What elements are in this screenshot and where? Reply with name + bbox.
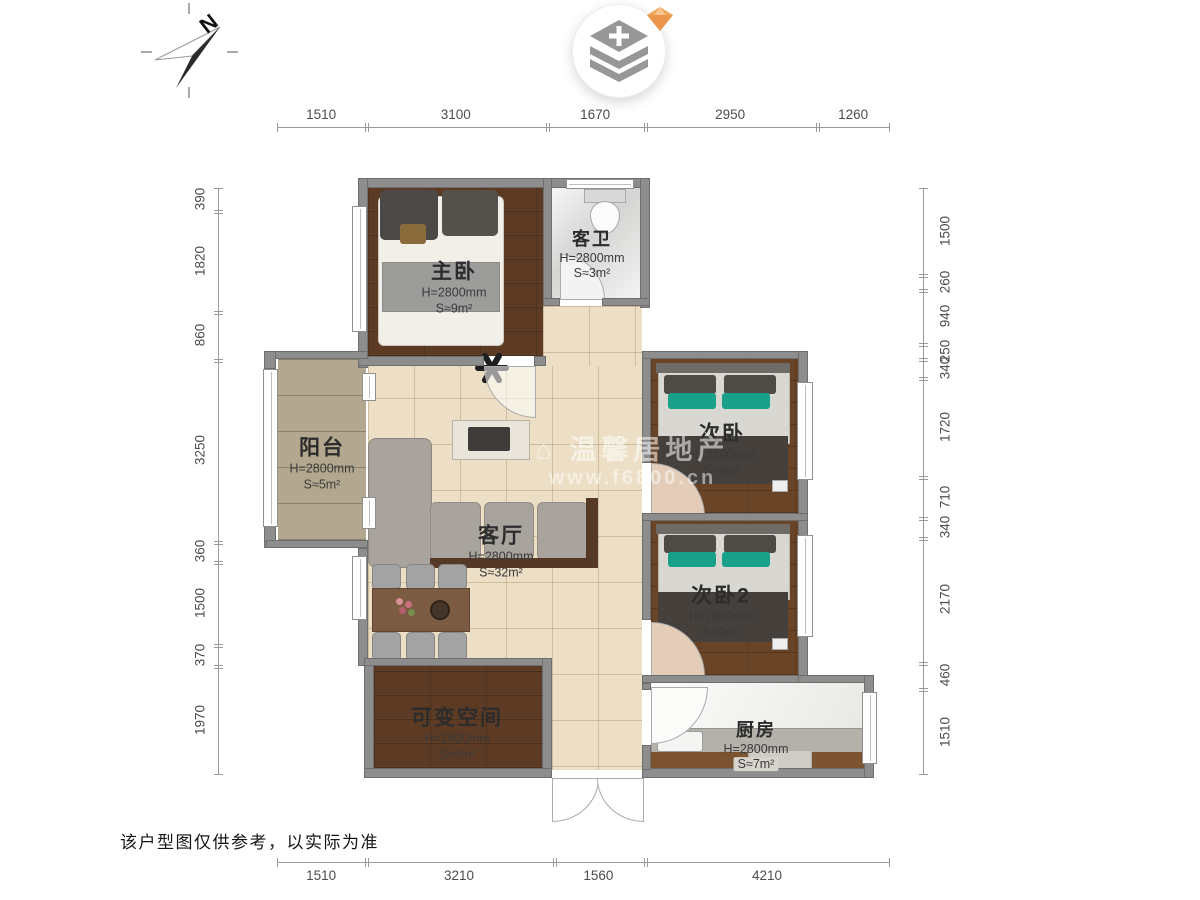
dimension-label: 1510 bbox=[277, 868, 365, 883]
room-height: H=2800mm bbox=[689, 610, 754, 626]
wall-segment bbox=[266, 351, 368, 359]
dimension-label: 710 bbox=[938, 485, 953, 508]
dimension-segment: 1970 bbox=[192, 665, 226, 775]
wall-segment bbox=[264, 351, 276, 369]
room-name: 可变空间 bbox=[411, 705, 503, 731]
room-height: H=2800mm bbox=[469, 550, 534, 566]
dining-chair bbox=[406, 564, 435, 590]
room-label-master: 主卧 H=2800mm S≈9m² bbox=[422, 259, 487, 317]
room-name: 厨房 bbox=[724, 719, 789, 742]
room-label-bath: 客卫 H=2800mm S≈3m² bbox=[560, 228, 625, 282]
wall-segment bbox=[640, 178, 650, 308]
dimension-segment: 1260 bbox=[816, 104, 890, 134]
dimension-segment: 940 bbox=[916, 289, 952, 343]
wall-segment bbox=[642, 683, 651, 690]
dimension-label: 3100 bbox=[365, 107, 546, 122]
wall-segment bbox=[642, 745, 651, 770]
room-area: S≈9m² bbox=[689, 625, 754, 641]
dimension-label: 1500 bbox=[193, 588, 208, 618]
dimension-label: 1720 bbox=[938, 412, 953, 442]
room-name: 阳台 bbox=[290, 435, 355, 461]
wall-segment bbox=[358, 356, 484, 366]
dimension-segment: 4210 bbox=[644, 856, 890, 886]
room-height: H=2800mm bbox=[560, 251, 625, 267]
dimension-segment: 710 bbox=[916, 476, 952, 517]
bedroom3-headboard bbox=[656, 524, 790, 534]
bed-foot bbox=[772, 480, 788, 492]
master-window bbox=[352, 206, 367, 332]
dining-chair bbox=[372, 632, 401, 661]
dimension-segment: 3210 bbox=[365, 856, 553, 886]
tv-console bbox=[468, 427, 510, 451]
room-area: S≈8m² bbox=[690, 463, 755, 479]
room-area: S≈32m² bbox=[469, 565, 534, 581]
dimension-label: 1970 bbox=[193, 705, 208, 735]
dimension-segment: 1510 bbox=[916, 688, 952, 775]
dining-window bbox=[352, 556, 367, 620]
bedroom2-headboard bbox=[656, 363, 790, 373]
sofa-cushion bbox=[537, 502, 588, 560]
dimension-segment: 1720 bbox=[916, 377, 952, 476]
hall-floor bbox=[543, 306, 642, 366]
wall-segment bbox=[542, 658, 552, 776]
dimension-label: 1500 bbox=[938, 216, 953, 246]
dimension-strip-top: 15103100167029501260 bbox=[277, 104, 890, 134]
room-height: H=2800mm bbox=[690, 448, 755, 464]
dimension-segment: 370 bbox=[192, 644, 226, 665]
dimension-label: 360 bbox=[193, 539, 208, 562]
dimension-segment: 860 bbox=[192, 311, 226, 359]
bedroom3-teal-pillow bbox=[722, 552, 770, 567]
dimension-label: 460 bbox=[938, 664, 953, 687]
entry-door-left-swing bbox=[552, 778, 599, 822]
dimension-segment: 460 bbox=[916, 662, 952, 688]
dimension-segment: 1560 bbox=[553, 856, 644, 886]
bedroom2-pillow bbox=[724, 375, 776, 394]
dimension-strip-left: 3901820860325036015003701970 bbox=[192, 188, 226, 775]
room-height: H=2800mm bbox=[411, 732, 503, 748]
room-label-kitchen: 厨房 H=2800mm S≈7m² bbox=[724, 719, 789, 773]
dimension-label: 1670 bbox=[546, 107, 644, 122]
dimension-segment: 250 bbox=[916, 343, 952, 357]
bedroom3-window bbox=[797, 535, 813, 637]
room-area: S≈7m² bbox=[724, 757, 789, 773]
room-label-living: 客厅 H=2800mm S≈32m² bbox=[469, 523, 534, 581]
dimension-segment: 2950 bbox=[644, 104, 816, 134]
dimension-segment: 3250 bbox=[192, 359, 226, 540]
wall-segment bbox=[642, 513, 808, 521]
dimension-label: 390 bbox=[193, 188, 208, 211]
wall-segment bbox=[642, 351, 808, 359]
balcony-window bbox=[263, 369, 278, 527]
room-area: S≈6m² bbox=[411, 747, 503, 763]
wall-segment bbox=[602, 298, 650, 306]
wall-segment bbox=[534, 356, 546, 366]
dimension-label: 2950 bbox=[644, 107, 816, 122]
disclaimer-text: 该户型图仅供参考，以实际为准 bbox=[120, 828, 379, 853]
bed-foot bbox=[772, 638, 788, 650]
dining-table bbox=[372, 588, 470, 632]
room-name: 主卧 bbox=[422, 259, 487, 285]
dining-chair bbox=[438, 632, 467, 661]
wall-segment bbox=[543, 178, 552, 306]
room-label-bed3: 次卧2 H=2800mm S≈9m² bbox=[689, 583, 754, 641]
room-height: H=2800mm bbox=[290, 462, 355, 478]
dimension-segment: 2170 bbox=[916, 537, 952, 662]
dimension-label: 1510 bbox=[277, 107, 365, 122]
dimension-segment: 1670 bbox=[546, 104, 644, 134]
dimension-segment: 1510 bbox=[277, 856, 365, 886]
balcony-frame bbox=[362, 373, 376, 401]
wall-segment bbox=[642, 515, 651, 620]
dimension-strip-bottom: 1510321015604210 bbox=[277, 856, 890, 886]
dimension-segment: 3100 bbox=[365, 104, 546, 134]
bedroom2-teal-pillow bbox=[668, 393, 716, 409]
dining-chair bbox=[406, 632, 435, 661]
master-bed-pillow bbox=[442, 190, 498, 236]
room-name: 次卧2 bbox=[689, 583, 754, 609]
dimension-label: 1820 bbox=[193, 246, 208, 276]
bedroom2-window bbox=[797, 382, 813, 480]
dimension-segment: 1820 bbox=[192, 210, 226, 312]
dimension-label: 1560 bbox=[553, 868, 644, 883]
bedroom3-teal-pillow bbox=[668, 552, 716, 567]
wall-segment bbox=[798, 675, 874, 683]
room-area: S≈3m² bbox=[560, 266, 625, 282]
wall-segment bbox=[364, 658, 374, 776]
kitchen-window bbox=[862, 692, 877, 764]
room-name: 次卧 bbox=[690, 421, 755, 447]
dimension-label: 940 bbox=[938, 305, 953, 328]
dimension-label: 340 bbox=[938, 516, 953, 539]
wall-segment bbox=[364, 768, 552, 778]
entry-floor bbox=[552, 666, 642, 770]
dimension-label: 2170 bbox=[938, 584, 953, 614]
room-area: S≈5m² bbox=[290, 477, 355, 493]
dining-chair bbox=[372, 564, 401, 590]
dinner-plate bbox=[430, 600, 450, 620]
gem-icon bbox=[646, 6, 674, 32]
dimension-strip-right: 1500260940250340172071034021704601510 bbox=[916, 188, 952, 775]
dimension-segment: 1510 bbox=[277, 104, 365, 134]
room-label-balcony: 阳台 H=2800mm S≈5m² bbox=[290, 435, 355, 493]
dimension-segment: 340 bbox=[916, 358, 952, 378]
bedroom3-pillow bbox=[664, 535, 716, 553]
dimension-label: 1510 bbox=[938, 717, 953, 747]
dimension-label: 1260 bbox=[816, 107, 890, 122]
wall-segment bbox=[543, 298, 560, 306]
dining-chair bbox=[438, 564, 467, 590]
wall-segment bbox=[266, 540, 368, 548]
compass-north-icon: N bbox=[140, 2, 260, 102]
dimension-segment: 340 bbox=[916, 517, 952, 537]
room-label-bed2: 次卧 H=2800mm S≈8m² bbox=[690, 421, 755, 479]
sofa-chaise bbox=[368, 438, 432, 568]
dimension-segment: 260 bbox=[916, 274, 952, 289]
bedroom2-teal-pillow bbox=[722, 393, 770, 409]
room-name: 客厅 bbox=[469, 523, 534, 549]
dimension-label: 860 bbox=[193, 324, 208, 347]
room-height: H=2800mm bbox=[724, 742, 789, 758]
bedroom2-pillow bbox=[664, 375, 716, 394]
entry-door-right-swing bbox=[597, 778, 644, 822]
dimension-segment: 390 bbox=[192, 188, 226, 210]
wall-segment bbox=[364, 658, 552, 666]
dimension-segment: 360 bbox=[192, 541, 226, 561]
room-height: H=2800mm bbox=[422, 286, 487, 302]
dimension-label: 370 bbox=[193, 643, 208, 666]
dimension-segment: 1500 bbox=[192, 561, 226, 645]
dimension-segment: 1500 bbox=[916, 188, 952, 274]
room-area: S≈9m² bbox=[422, 301, 487, 317]
bedroom3-pillow bbox=[724, 535, 776, 553]
bath-window bbox=[566, 179, 634, 189]
compass-n-label: N bbox=[195, 9, 223, 38]
dimension-label: 3250 bbox=[193, 435, 208, 465]
floorplan-page: N bbox=[0, 0, 1200, 900]
dimension-label: 3210 bbox=[365, 868, 553, 883]
wall-segment bbox=[642, 351, 651, 463]
table-flowers bbox=[396, 598, 403, 605]
wall-segment bbox=[642, 675, 808, 683]
room-name: 客卫 bbox=[560, 228, 625, 251]
master-bed-cushion bbox=[400, 224, 426, 244]
dimension-label: 340 bbox=[938, 356, 953, 379]
room-label-flex: 可变空间 H=2800mm S≈6m² bbox=[411, 705, 503, 763]
balcony-frame bbox=[362, 497, 376, 529]
dimension-label: 4210 bbox=[644, 868, 890, 883]
